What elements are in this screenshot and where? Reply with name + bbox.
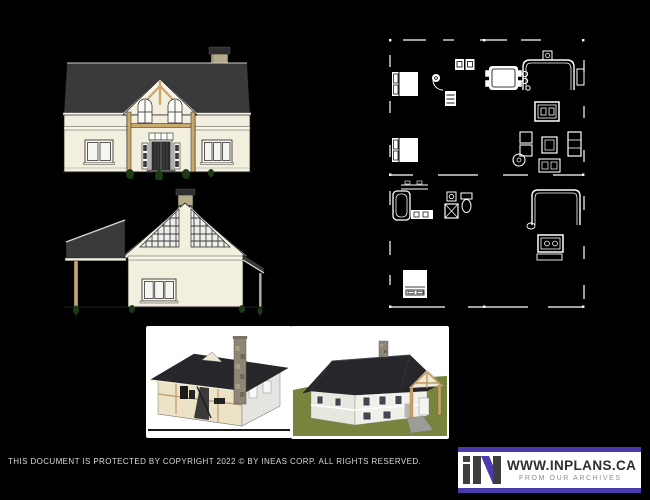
render-cutaway (146, 326, 292, 438)
plan-bath-upper (432, 74, 456, 106)
inplans-logo: WWW.INPLANS.CA FROM OUR ARCHIVES (458, 447, 641, 493)
stone-chimney (233, 336, 247, 404)
plan-stairs-upper (523, 51, 584, 90)
floor-plan-drawing (383, 33, 590, 313)
porch-left (64, 220, 128, 307)
plan-dining-table (485, 66, 522, 90)
plan-stairs-lower (527, 190, 580, 229)
rear-elevation-drawing (62, 183, 267, 328)
plan-bath-lower (393, 191, 472, 220)
logo-tagline: FROM OUR ARCHIVES (519, 475, 636, 482)
plan-beds (392, 72, 418, 162)
copyright-notice: THIS DOCUMENT IS PROTECTED BY COPYRIGHT … (8, 457, 468, 466)
bay-post-left (127, 112, 131, 172)
ground-plants (64, 305, 265, 317)
plan-laundry (455, 59, 475, 70)
bay-post-right (191, 112, 195, 172)
plan-counter (401, 181, 428, 189)
plan-fireplace-upper (535, 102, 559, 121)
render-exterior (291, 326, 449, 439)
gable-glazing-left (138, 207, 181, 249)
rear-window (140, 279, 178, 303)
gable-glazing-right (189, 207, 232, 249)
in-mark-icon (462, 455, 502, 485)
logo-website: WWW.INPLANS.CA (507, 459, 636, 473)
porch-right (243, 255, 264, 307)
plan-living-room (513, 132, 581, 172)
plan-fireplace-lower (537, 235, 563, 260)
render-chimney (379, 341, 388, 357)
plan-corner-dots (389, 39, 584, 308)
plan-appliance (403, 270, 427, 298)
front-elevation-drawing (58, 22, 258, 180)
logo-bottom-bar (458, 488, 641, 493)
bay-beam (127, 124, 195, 128)
plan-sheet: { "canvas": { "background": "#000000" },… (0, 0, 650, 500)
rear-gable (122, 203, 248, 258)
window-left (84, 140, 115, 165)
window-right (201, 140, 234, 165)
